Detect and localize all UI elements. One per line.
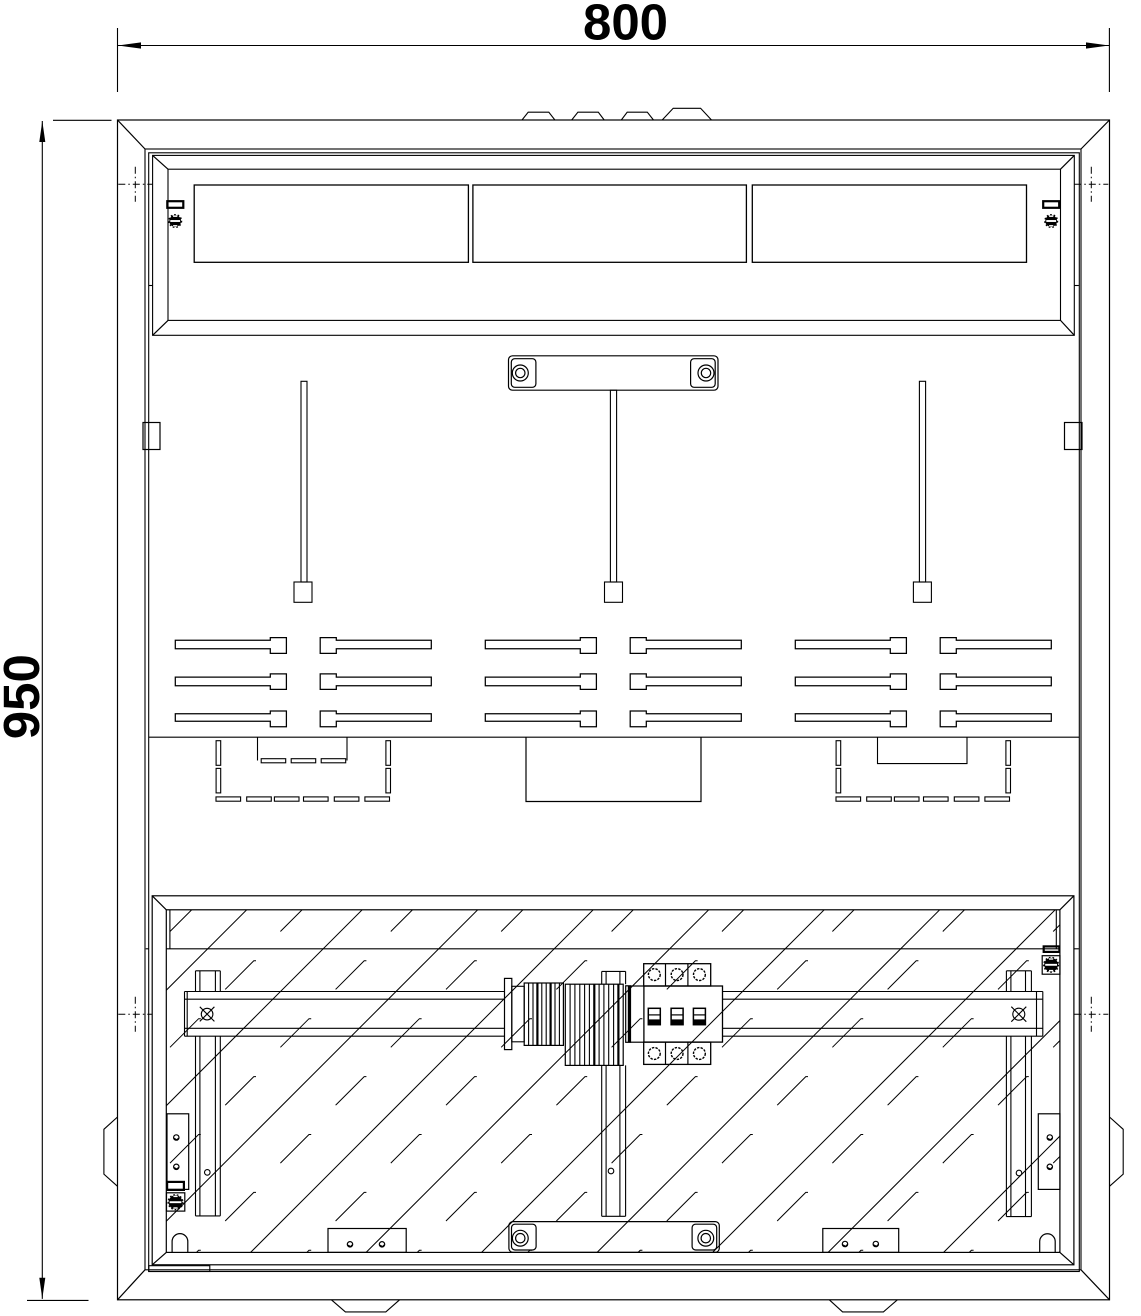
svg-text:950: 950 [0,654,50,739]
svg-text:800: 800 [583,0,668,51]
